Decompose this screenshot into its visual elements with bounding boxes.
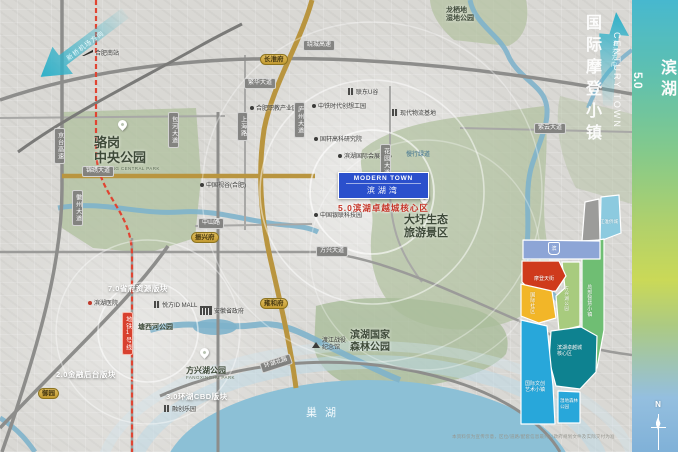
lake-label: 巢湖 (306, 404, 344, 420)
area-label-line: 塘西河公园 (138, 324, 173, 332)
road-badge-5: 中山路 (198, 218, 224, 229)
greenway-label: 慢行绿道 (406, 149, 430, 158)
area-label-3: 方兴湖公园FANGXINGHU PARK (186, 366, 235, 380)
area-label-line: 龙栖地 (446, 7, 474, 15)
dotred-icon (88, 301, 92, 305)
compass-needle (658, 414, 659, 450)
dot-icon (314, 213, 318, 217)
title-cn-binhu: 滨湖 (654, 59, 678, 101)
project-logo-en: MODERN TOWN (346, 175, 421, 182)
poi-label: 融创乐园 (172, 404, 196, 413)
road-badge-0: 绕城高速 (303, 40, 335, 51)
title-strip-text: 滨湖 5.0 CENTURY TOWN 国际摩登小镇 (632, 14, 678, 146)
road-badge-7: 京台高速 (54, 128, 65, 164)
inset-zone-label-line: 核心区 (557, 351, 582, 357)
estate-badge-0: 长淮府 (260, 54, 288, 65)
gov-icon (200, 306, 212, 315)
road-badge-1: 紫云大道 (534, 123, 566, 134)
inset-zone-label-7: 湿地森林公园 (560, 398, 578, 409)
dot-icon (312, 104, 316, 108)
poi-5: 现代物流基地 (392, 108, 436, 117)
road-badge-11: 庐州大道 (294, 102, 305, 138)
dot-icon (250, 106, 254, 110)
map-canvas: 新桥机场方向 淝河方向 MODERN TOWN 滨湖湾 5.0滨湖卓越城核心区 … (0, 0, 632, 452)
road-badge-9: 包河大道 (168, 112, 179, 148)
poi-label: 悦方ID MALL (162, 300, 197, 309)
estate-badge-2: 雍和府 (260, 298, 288, 309)
road-badge-4: 方兴大道 (316, 246, 348, 257)
area-label-sub: FANGXINGHU PARK (186, 375, 235, 380)
area-label-line: 湿地公园 (446, 15, 474, 23)
inset-zone-label-line: 湿地森林 (560, 398, 578, 404)
poi-label: 合肥职教产业园 (256, 103, 298, 112)
poi-label: 国轩高科研究院 (320, 134, 362, 143)
poi-label: 滨湖医院 (94, 298, 118, 307)
dot-icon (200, 183, 204, 187)
inset-zone-lightblue (600, 195, 621, 241)
ring-label-2: 3.0环湖CBD版块 (166, 391, 228, 402)
inset-zone-label-1: 摩登天街 (534, 276, 554, 282)
inset-zone-label-4: 总部智慧小镇 (586, 284, 592, 317)
area-label-line: 大圩生态 (404, 214, 448, 227)
road-ring-expressway (0, 58, 632, 100)
project-tagline: 5.0滨湖卓越城核心区 (338, 202, 429, 214)
title-strip: 滨湖 5.0 CENTURY TOWN 国际摩登小镇 (632, 0, 678, 452)
area-label-5: 龙栖地湿地公园 (446, 7, 474, 23)
poi-label-line: 渡江战役 (322, 338, 346, 345)
park-wetland-ne (430, 0, 527, 46)
road-badge-13: 地铁1号线 (122, 312, 133, 355)
compass-n-label: N (655, 400, 661, 409)
disclaimer-text: 本资料仅为宣传示意，区位/道路/配套信息最终以政府规划文件及实际交付为准 (452, 434, 624, 440)
poi-label-lines: 渡江战役纪念馆 (322, 338, 346, 352)
bld-icon (348, 88, 354, 95)
road-badge-10: 上海路 (237, 112, 248, 141)
poi-3: 国轩高科研究院 (314, 134, 362, 143)
dot-icon (338, 154, 342, 158)
inset-zone-gray (582, 199, 600, 241)
inset-zone-label-6: 国际文创艺术小镇 (525, 381, 545, 394)
poi-1: 合肥职教产业园 (250, 103, 298, 112)
poi-label: 合肥南站 (95, 48, 119, 57)
poi-6: 中国视谷(合肥) (200, 180, 246, 189)
ring-label-0: 7.0省府资源版块 (108, 283, 168, 294)
bld-icon (164, 405, 170, 412)
area-label-line: 中央公园 (94, 151, 160, 166)
project-logo: MODERN TOWN 滨湖湾 5.0滨湖卓越城核心区 (338, 172, 429, 214)
inset-zone-blue-large (521, 320, 555, 424)
poi-label: 中国视谷(合肥) (206, 180, 246, 189)
poi-label-line: 纪念馆 (322, 345, 346, 352)
ring-label-1: 2.0金融后台版块 (56, 369, 116, 380)
poi-label: 中铁时代创想工园 (318, 101, 366, 110)
bld-icon (154, 301, 160, 308)
poi-label: 联东U谷 (356, 87, 378, 96)
area-label-1: 大圩生态旅游景区 (404, 214, 448, 239)
dot-icon (314, 137, 318, 141)
poi-2: 中铁时代创想工园 (312, 101, 366, 110)
inset-zone-shield-icon: 滨 (548, 242, 560, 255)
project-logo-cn: 滨湖湾 (346, 183, 421, 196)
poi-11: 安徽省政府 (200, 306, 244, 315)
road-badge-3: 锦绣大道 (82, 166, 114, 177)
area-label-line: 滨湖国家 (350, 330, 390, 342)
inset-zone-label-line: 公园 (560, 404, 578, 410)
poi-4: 联东U谷 (348, 87, 378, 96)
poi-9: 滨湖医院 (88, 298, 118, 307)
inset-zone-label-2: 国际社区 (529, 292, 535, 314)
fangxing-lake (193, 319, 237, 335)
area-label-4: 塘西河公园 (138, 324, 173, 332)
inset-zone-teal (549, 327, 597, 389)
compass: N (651, 394, 665, 450)
poi-12: 渡江战役纪念馆 (312, 338, 346, 352)
title-en: CENTURY TOWN (612, 32, 622, 129)
area-label-2: 滨湖国家森林公园 (350, 330, 390, 353)
poi-13: 融创乐园 (164, 404, 196, 413)
area-label-line: 旅游景区 (404, 227, 448, 240)
inset-zone-label-5: 滨湖卓越城核心区 (557, 345, 582, 358)
map-poster: 新桥机场方向 淝河方向 MODERN TOWN 滨湖湾 5.0滨湖卓越城核心区 … (0, 0, 678, 452)
bld-icon (392, 109, 398, 116)
poi-0: 合肥南站 (82, 48, 119, 57)
inset-zone-label-line: 艺术小镇 (525, 387, 545, 393)
inset-zone-label-3: 方兴湖公园 (564, 286, 570, 311)
inset-zone-periwinkle (523, 240, 600, 259)
road-badge-2: 繁华大道 (244, 78, 276, 89)
road-badge-8: 徽州大道 (72, 190, 83, 226)
estate-badge-1: 振兴府 (191, 232, 219, 243)
tri-icon (312, 342, 320, 348)
estate-badge-3: 御园 (38, 388, 59, 399)
project-logo-box: MODERN TOWN 滨湖湾 (338, 172, 429, 199)
compass-diamond (656, 417, 661, 430)
area-label-line: 森林公园 (350, 342, 390, 354)
park-luogang (62, 108, 201, 253)
area-label-line: 骆岗 (94, 136, 160, 151)
title-number: 5.0 (631, 72, 645, 89)
area-label-line: 方兴湖公园 (186, 366, 235, 375)
poi-label: 现代物流基地 (400, 108, 436, 117)
poi-10: 悦方ID MALL (154, 300, 197, 309)
title-cn-town: 国际摩登小镇 (579, 14, 603, 146)
poi-label: 安徽省政府 (214, 306, 244, 315)
inset-zone-label-9: 江淮侨城 (600, 219, 618, 225)
